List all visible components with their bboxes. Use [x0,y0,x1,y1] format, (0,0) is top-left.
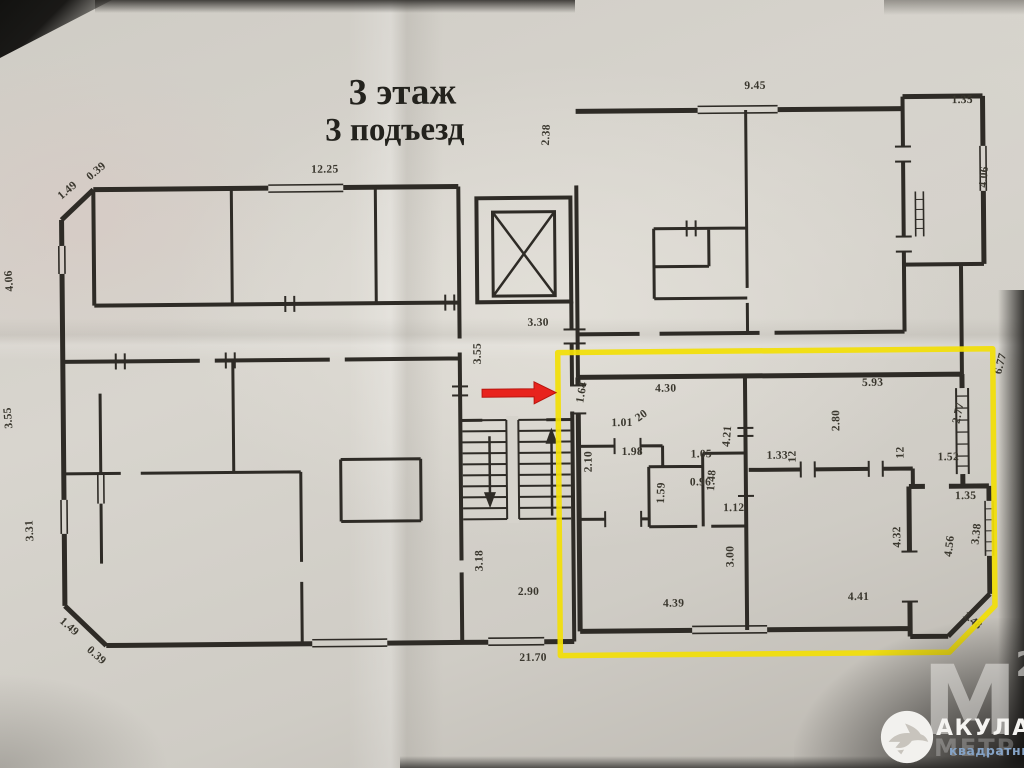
dimension-label: 3.18 [473,550,485,571]
dimension-label: 1.52 [938,451,959,463]
shark-logo-icon [878,708,936,766]
dimension-label: 1.05 [691,448,712,460]
watermark-brand: АКУЛА [936,716,1024,741]
dimension-label: 12 [895,446,907,458]
dimension-label: 1.35 [955,490,976,502]
dimension-label: 1.12 [723,502,744,514]
entry-arrow-icon [482,382,556,405]
dimension-label: 12 [787,450,799,462]
dimension-label: 3.55 [2,407,16,429]
dimension-label: 3.00 [724,546,736,567]
dimension-label: 1.48 [705,469,719,491]
stair-up-arrow [551,438,552,516]
dimension-label: 1.49 [56,179,80,202]
elevator-x-icon [492,212,555,297]
dimension-label: 1.01 [611,417,632,429]
dimension-label: 4.56 [943,535,957,558]
dimension-label: 4.39 [663,598,684,610]
dimension-label: 1.35 [951,94,972,106]
dimension-label: 0.39 [84,160,108,183]
dimension-label: 4.41 [848,591,869,603]
entrance-title: 3 подъезд [325,111,465,148]
dimension-label: 21.70 [519,652,546,664]
dimension-label: 0.39 [84,644,108,667]
dimension-label: 9.45 [744,80,765,92]
dimension-label: 3.31 [23,520,36,542]
watermark-brand-sub: квадратный [949,743,1024,758]
dimension-label: 3.38 [969,523,983,546]
floorplan-photo: 3 этаж 3 подъезд [0,0,1024,768]
dimension-label: 1.98 [622,446,643,458]
dimension-label: 4.06 [3,270,17,292]
dimension-label: 2.90 [518,586,539,598]
floor-title: 3 этаж [348,71,456,113]
dimension-label: 4.21 [721,425,735,447]
elevator-shaft [476,197,571,302]
dimension-label: 4.32 [891,526,903,547]
dimension-label: 3.55 [472,343,484,364]
dimension-label: 5.93 [862,377,883,389]
floorplan-drawing: 3 этаж 3 подъезд [0,0,1024,768]
dimension-label: 2.77 [951,401,967,424]
dimension-label: 1.64 [574,381,589,404]
dimension-label: 1.33 [767,450,788,462]
dimension-label: 2.80 [830,410,842,431]
dimension-label: 12.25 [311,164,338,176]
dimension-label: 20 [633,408,650,425]
dimension-label: 4.30 [655,383,676,395]
dimension-label: 2.38 [540,124,553,146]
outer-walls [61,96,991,646]
stair-down-arrow [489,436,490,498]
dimension-label: 1.59 [655,482,668,504]
dimension-label: 3.30 [527,317,548,329]
interior-walls [61,96,988,646]
apartment-highlight-outline [558,349,996,656]
dimension-label: 2.10 [583,451,595,472]
dimension-label: 4.06 [977,166,991,188]
